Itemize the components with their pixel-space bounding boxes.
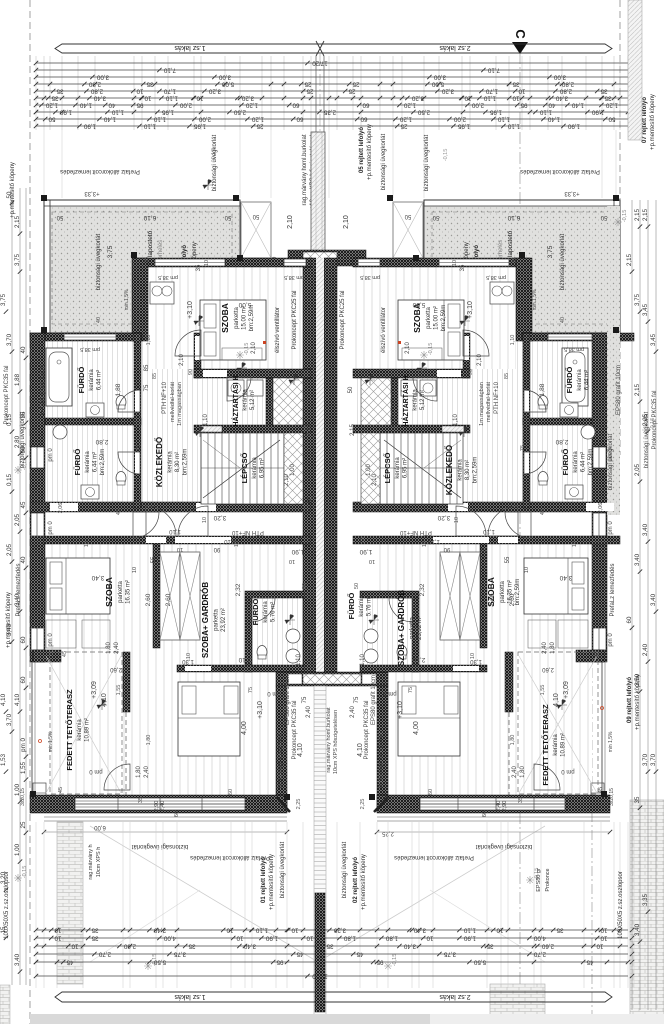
svg-text:pm 0: pm 0 — [608, 448, 614, 462]
svg-text:2.sz lakás: 2.sz lakás — [439, 993, 471, 1000]
svg-text:C: C — [513, 29, 528, 39]
svg-text:rag.márvány h: rag.márvány h — [88, 844, 94, 879]
svg-text:35: 35 — [512, 257, 518, 263]
svg-text:pm 0: pm 0 — [89, 768, 103, 774]
svg-text:55: 55 — [151, 556, 157, 563]
svg-text:1m magasságban: 1m magasságban — [479, 382, 485, 426]
svg-text:1,10: 1,10 — [360, 654, 366, 666]
svg-text:15.00 m²: 15.00 m² — [242, 306, 248, 330]
svg-text:pm 38,5: pm 38,5 — [486, 274, 506, 280]
svg-text:60: 60 — [292, 102, 299, 109]
svg-text:95: 95 — [520, 102, 527, 109]
svg-text:35: 35 — [600, 88, 607, 95]
svg-text:1,10: 1,10 — [296, 654, 302, 666]
svg-text:3,40: 3,40 — [634, 553, 641, 566]
svg-text:50: 50 — [354, 583, 360, 589]
svg-text:75: 75 — [408, 687, 414, 693]
svg-text:PTH NF+10: PTH NF+10 — [162, 381, 168, 414]
svg-text:SZOBA: SZOBA — [220, 303, 230, 333]
svg-text:2,15: 2,15 — [642, 208, 649, 221]
svg-text:50: 50 — [48, 116, 55, 123]
svg-text:2,15: 2,15 — [14, 215, 21, 228]
svg-text:kerámia: kerámia — [243, 389, 249, 411]
svg-text:1,88: 1,88 — [14, 373, 21, 386]
svg-text:1,10: 1,10 — [483, 95, 496, 102]
svg-text:1,20: 1,20 — [251, 116, 264, 123]
svg-text:35: 35 — [512, 81, 519, 88]
svg-text:95: 95 — [276, 959, 283, 966]
svg-text:60: 60 — [428, 789, 434, 795]
svg-text:1m magasságban: 1m magasságban — [177, 382, 183, 426]
svg-text:2,32: 2,32 — [419, 583, 426, 596]
svg-text:KÖZLEKEDŐ: KÖZLEKEDŐ — [155, 437, 164, 487]
svg-text:5,00: 5,00 — [221, 81, 234, 88]
svg-text:min 1,5%: min 1,5% — [608, 731, 614, 752]
svg-text:2,10: 2,10 — [477, 354, 483, 366]
svg-text:45: 45 — [20, 501, 27, 508]
svg-text:bm:2,59m: bm:2,59m — [588, 449, 594, 476]
svg-text:2,06: 2,06 — [58, 503, 64, 514]
svg-text:biztonsági üvegkorlát: biztonsági üvegkorlát — [96, 233, 102, 290]
svg-text:2,10: 2,10 — [343, 215, 350, 229]
svg-text:2,50: 2,50 — [417, 109, 430, 116]
svg-text:60: 60 — [296, 116, 303, 123]
svg-text:6,10: 6,10 — [143, 214, 156, 221]
svg-text:+p.mentesítő köpeny: +p.mentesítő köpeny — [6, 592, 12, 648]
svg-text:1,53: 1,53 — [0, 753, 7, 766]
svg-text:07 rejtett lefolyó: 07 rejtett lefolyó — [642, 97, 648, 143]
svg-text:5,00: 5,00 — [238, 301, 251, 308]
svg-text:FÜRDŐ: FÜRDŐ — [251, 599, 260, 626]
svg-text:PrefaLz lemezfedés: PrefaLz lemezfedés — [610, 563, 616, 616]
svg-text:10: 10 — [144, 95, 151, 102]
svg-text:35: 35 — [146, 81, 153, 88]
svg-text:1,10: 1,10 — [153, 116, 166, 123]
svg-text:2,06: 2,06 — [598, 503, 604, 514]
svg-text:EPS80 grafit 10cm: EPS80 grafit 10cm — [371, 675, 377, 725]
svg-text:kerámia: kerámia — [573, 451, 579, 473]
svg-text:2,05: 2,05 — [642, 413, 649, 426]
svg-text:kerámia: kerámia — [89, 369, 95, 391]
svg-text:+p.mentesítő köpeny: +p.mentesítő köpeny — [269, 854, 275, 910]
svg-text:10: 10 — [481, 546, 487, 552]
svg-text:3,20: 3,20 — [441, 88, 454, 95]
svg-text:Prefalz állókorcolt lemezfedés: Prefalz állókorcolt lemezfedés — [394, 854, 474, 860]
svg-text:10: 10 — [226, 927, 233, 934]
svg-text:4,10: 4,10 — [0, 693, 7, 706]
svg-text:1,10: 1,10 — [165, 95, 178, 102]
svg-text:6,10: 6,10 — [507, 214, 520, 221]
svg-text:1,70: 1,70 — [163, 88, 176, 95]
svg-text:1,95: 1,95 — [161, 109, 174, 116]
svg-text:biztonsági üvegkorlát: biztonsági üvegkorlát — [378, 731, 384, 788]
svg-text:pm 0: pm 0 — [608, 633, 614, 647]
svg-text:2,40: 2,40 — [542, 642, 548, 654]
svg-text:2,60: 2,60 — [542, 666, 554, 672]
svg-text:50: 50 — [404, 213, 411, 219]
svg-text:1,90: 1,90 — [265, 935, 278, 942]
svg-text:2,70: 2,70 — [98, 951, 111, 958]
svg-text:1,95: 1,95 — [489, 109, 502, 116]
svg-text:5,00: 5,00 — [431, 81, 444, 88]
svg-text:4,00: 4,00 — [533, 935, 546, 942]
svg-text:1.sz lakás: 1.sz lakás — [174, 44, 206, 51]
svg-text:3,40: 3,40 — [559, 574, 572, 581]
svg-text:10: 10 — [426, 935, 433, 942]
svg-text:3,75: 3,75 — [14, 253, 21, 266]
svg-text:10: 10 — [572, 541, 578, 547]
svg-text:2,80: 2,80 — [14, 435, 21, 448]
svg-text:3,75: 3,75 — [443, 951, 456, 958]
svg-text:3,00: 3,00 — [553, 74, 566, 81]
svg-text:pm 38,5: pm 38,5 — [564, 346, 584, 352]
svg-text:3,35: 3,35 — [642, 893, 649, 906]
svg-text:2,10: 2,10 — [179, 354, 185, 366]
svg-text:3,40: 3,40 — [403, 943, 416, 950]
svg-text:35: 35 — [91, 927, 98, 934]
svg-text:40: 40 — [20, 346, 27, 353]
svg-text:3,70: 3,70 — [650, 753, 657, 766]
svg-text:7,10: 7,10 — [163, 67, 176, 74]
svg-text:pm 0: pm 0 — [20, 738, 27, 752]
svg-text:1,10: 1,10 — [539, 109, 552, 116]
svg-text:2,05: 2,05 — [634, 463, 641, 476]
svg-text:3,00: 3,00 — [433, 74, 446, 81]
svg-text:-0,15: -0,15 — [650, 418, 656, 431]
svg-text:EPS80 grafit 10cm: EPS80 grafit 10cm — [285, 675, 291, 725]
svg-text:1,00: 1,00 — [366, 464, 372, 476]
svg-text:-0,15: -0,15 — [443, 149, 449, 162]
svg-text:85: 85 — [504, 373, 510, 379]
svg-text:6,44 m²: 6,44 m² — [97, 370, 103, 390]
svg-text:1,10: 1,10 — [483, 528, 495, 534]
svg-text:2,00: 2,00 — [453, 116, 466, 123]
svg-text:1,00: 1,00 — [14, 843, 21, 856]
svg-text:25: 25 — [304, 81, 311, 88]
svg-text:min 1,5%: min 1,5% — [124, 289, 130, 310]
svg-text:+3,33: +3,33 — [84, 190, 100, 196]
svg-text:3,00: 3,00 — [218, 74, 231, 81]
svg-text:1,10: 1,10 — [111, 109, 124, 116]
svg-text:LÉPCSŐ: LÉPCSŐ — [383, 452, 392, 483]
svg-text:PTH NF+10: PTH NF+10 — [494, 381, 500, 414]
svg-text:10: 10 — [369, 558, 375, 564]
svg-text:3,50: 3,50 — [634, 673, 641, 686]
svg-text:1,20: 1,20 — [399, 116, 412, 123]
svg-text:1,10: 1,10 — [428, 538, 440, 544]
svg-text:Prefalz állókorcolt lemezfedés: Prefalz állókorcolt lemezfedés — [60, 168, 140, 174]
svg-text:10: 10 — [291, 927, 298, 934]
svg-text:05 rejtett lefolyó: 05 rejtett lefolyó — [359, 127, 365, 173]
svg-text:35: 35 — [556, 927, 563, 934]
svg-text:45: 45 — [296, 951, 303, 958]
svg-text:10: 10 — [202, 517, 208, 523]
svg-text:pm 38,5: pm 38,5 — [158, 274, 178, 280]
svg-text:35: 35 — [518, 797, 524, 803]
svg-text:90: 90 — [443, 546, 450, 552]
svg-text:Prokoncept PKC35 fal: Prokoncept PKC35 fal — [364, 700, 370, 759]
svg-text:50: 50 — [432, 214, 439, 220]
svg-text:1,10: 1,10 — [497, 116, 510, 123]
svg-text:75: 75 — [248, 687, 254, 693]
svg-text:4,00: 4,00 — [241, 721, 248, 735]
svg-text:3,20: 3,20 — [241, 95, 254, 102]
svg-text:FÜRDŐ: FÜRDŐ — [73, 449, 82, 476]
svg-text:2,15: 2,15 — [634, 383, 641, 396]
svg-text:35: 35 — [56, 88, 63, 95]
svg-text:kerámia: kerámia — [395, 457, 401, 479]
svg-text:1,10: 1,10 — [507, 123, 520, 130]
svg-text:parketta: parketta — [426, 307, 432, 329]
svg-text:5,12 m²: 5,12 m² — [420, 390, 426, 410]
svg-text:95: 95 — [136, 102, 143, 109]
svg-text:parketta: parketta — [214, 609, 220, 631]
svg-text:10: 10 — [204, 260, 210, 266]
svg-text:2,80: 2,80 — [555, 438, 568, 445]
svg-text:2,80: 2,80 — [95, 438, 108, 445]
svg-text:8,30 m²: 8,30 m² — [175, 452, 181, 472]
svg-text:1,00: 1,00 — [290, 464, 296, 476]
svg-text:3,70: 3,70 — [6, 713, 13, 726]
svg-text:45: 45 — [66, 959, 73, 966]
svg-text:10.89 m²: 10.89 m² — [85, 718, 91, 742]
svg-text:pm 0: pm 0 — [48, 633, 54, 647]
svg-text:75: 75 — [136, 445, 142, 451]
svg-text:1,10: 1,10 — [255, 927, 268, 934]
svg-text:2,50: 2,50 — [233, 109, 246, 116]
svg-text:60: 60 — [20, 676, 27, 683]
svg-text:3,40: 3,40 — [555, 95, 568, 102]
svg-text:10: 10 — [600, 935, 607, 942]
svg-text:10: 10 — [186, 653, 192, 659]
svg-text:3,40: 3,40 — [634, 923, 641, 936]
svg-text:pm 0: pm 0 — [608, 521, 614, 535]
svg-text:3,40: 3,40 — [650, 593, 657, 606]
svg-text:3,40: 3,40 — [413, 927, 426, 934]
svg-text:Prefalz állókorcolt lemezfedés: Prefalz állókorcolt lemezfedés — [520, 168, 600, 174]
svg-text:50: 50 — [6, 191, 13, 198]
svg-text:55: 55 — [505, 556, 511, 563]
svg-text:90: 90 — [468, 369, 474, 375]
svg-text:40: 40 — [108, 102, 115, 109]
svg-text:6,44 m²: 6,44 m² — [93, 452, 99, 472]
svg-text:+3,09: +3,09 — [563, 681, 570, 699]
svg-text:2,40: 2,40 — [144, 766, 150, 778]
svg-text:kerámia: kerámia — [577, 369, 583, 391]
svg-text:25: 25 — [360, 537, 366, 543]
svg-text:1,20: 1,20 — [45, 102, 58, 109]
svg-text:3,45: 3,45 — [642, 303, 649, 316]
svg-text:60: 60 — [228, 789, 234, 795]
svg-text:SZOBA+ GARDRÓB: SZOBA+ GARDRÓB — [397, 590, 406, 666]
svg-text:90: 90 — [213, 546, 220, 552]
svg-text:rag.márvány homl.burkolat: rag.márvány homl.burkolat — [302, 134, 308, 205]
svg-text:1,80: 1,80 — [343, 935, 356, 942]
svg-text:1,10: 1,10 — [169, 528, 181, 534]
svg-text:2,40: 2,40 — [512, 766, 518, 778]
svg-text:5,50: 5,50 — [153, 959, 166, 966]
svg-text:10: 10 — [470, 653, 476, 659]
svg-text:2,70: 2,70 — [533, 951, 546, 958]
svg-text:10: 10 — [289, 558, 295, 564]
svg-text:1,90: 1,90 — [567, 123, 580, 130]
svg-text:35: 35 — [144, 257, 150, 263]
svg-text:parketta: parketta — [500, 581, 506, 603]
svg-text:biztonsági üvegkorlát: biztonsági üvegkorlát — [560, 233, 566, 290]
svg-text:1,20: 1,20 — [605, 102, 618, 109]
svg-text:pm 38,5: pm 38,5 — [360, 274, 380, 280]
svg-text:10cm XPS h: 10cm XPS h — [96, 847, 102, 878]
svg-text:15: 15 — [0, 926, 7, 933]
svg-text:+3,10: +3,10 — [257, 701, 264, 719]
svg-text:5.76 m²: 5.76 m² — [367, 596, 373, 616]
svg-text:4,10: 4,10 — [14, 693, 21, 706]
svg-text:10: 10 — [452, 260, 458, 266]
svg-text:10: 10 — [496, 927, 503, 934]
svg-text:45: 45 — [62, 651, 68, 657]
svg-text:15.00 m²: 15.00 m² — [434, 306, 440, 330]
svg-text:3,20: 3,20 — [437, 514, 450, 521]
svg-text:35: 35 — [91, 935, 98, 942]
svg-text:6,44 m²: 6,44 m² — [585, 370, 591, 390]
svg-text:4,00: 4,00 — [413, 721, 420, 735]
svg-text:2,40: 2,40 — [114, 642, 120, 654]
svg-text:2,80: 2,80 — [90, 88, 103, 95]
svg-text:50: 50 — [348, 386, 354, 393]
svg-text:50: 50 — [302, 583, 308, 589]
svg-text:pm 0: pm 0 — [561, 768, 575, 774]
svg-text:25: 25 — [352, 81, 359, 88]
svg-text:50: 50 — [56, 214, 63, 220]
svg-text:1,40: 1,40 — [547, 116, 560, 123]
svg-text:PrefaLz lemezfedés: PrefaLz lemezfedés — [16, 563, 22, 616]
svg-text:50: 50 — [224, 214, 231, 220]
svg-text:35: 35 — [196, 264, 202, 271]
svg-text:35: 35 — [460, 264, 466, 271]
svg-text:2,40: 2,40 — [306, 706, 312, 718]
svg-text:3,45: 3,45 — [650, 333, 657, 346]
svg-text:45: 45 — [586, 959, 593, 966]
svg-text:-0,15: -0,15 — [22, 866, 28, 879]
svg-text:75: 75 — [520, 445, 526, 451]
svg-text:parketta: parketta — [234, 307, 240, 329]
svg-text:Prokoncept PKC25 fal: Prokoncept PKC25 fal — [340, 290, 346, 349]
svg-text:1,80: 1,80 — [520, 766, 526, 778]
svg-text:4,00: 4,00 — [163, 935, 176, 942]
svg-text:2,60: 2,60 — [509, 593, 516, 606]
svg-text:pm 0: pm 0 — [48, 521, 54, 535]
svg-text:1,55: 1,55 — [116, 685, 122, 696]
svg-text:pm 0: pm 0 — [383, 690, 397, 696]
svg-text:élszívó ventillátor: élszívó ventillátor — [275, 307, 281, 353]
svg-text:23,92 m²: 23,92 m² — [221, 608, 227, 632]
svg-text:3,40: 3,40 — [153, 927, 166, 934]
svg-text:1,10: 1,10 — [510, 335, 516, 346]
svg-text:3,20: 3,20 — [213, 514, 226, 521]
svg-text:mellvédfal-korlát: mellvédfal-korlát — [486, 382, 492, 423]
svg-text:25: 25 — [256, 123, 263, 130]
svg-text:bm:2,59m: bm:2,59m — [100, 449, 106, 476]
svg-text:élszívó ventillátor: élszívó ventillátor — [381, 307, 387, 353]
svg-text:7,10: 7,10 — [487, 67, 500, 74]
svg-text:-0,15: -0,15 — [392, 954, 398, 967]
svg-text:1,55: 1,55 — [540, 685, 546, 696]
svg-text:6,44 m²: 6,44 m² — [581, 452, 587, 472]
svg-text:2,00: 2,00 — [198, 116, 211, 123]
svg-text:10: 10 — [512, 95, 519, 102]
svg-text:1,10: 1,10 — [143, 123, 156, 130]
svg-text:3,40: 3,40 — [642, 523, 649, 536]
svg-text:4,10: 4,10 — [357, 743, 364, 757]
svg-text:3,40: 3,40 — [93, 95, 106, 102]
svg-text:biztonsági üvegkorlát: biztonsági üvegkorlát — [342, 841, 348, 898]
svg-text:35: 35 — [326, 943, 333, 950]
svg-text:Prefalz állókorcolt lemezfedés: Prefalz állókorcolt lemezfedés — [190, 854, 270, 860]
svg-text:3,40: 3,40 — [14, 593, 21, 606]
svg-text:6,95 m²: 6,95 m² — [403, 458, 409, 478]
svg-text:10: 10 — [454, 517, 460, 523]
svg-text:45: 45 — [594, 651, 600, 657]
svg-text:45: 45 — [540, 509, 546, 515]
svg-text:2,60: 2,60 — [165, 593, 172, 606]
svg-text:HÁZTARTÁSI H.: HÁZTARTÁSI H. — [231, 373, 240, 426]
svg-text:biztonsági üvegkorlát: biztonsági üvegkorlát — [381, 133, 387, 190]
svg-text:2,10: 2,10 — [251, 342, 257, 354]
svg-text:2,60: 2,60 — [541, 943, 554, 950]
svg-text:60: 60 — [174, 811, 180, 817]
svg-text:-0,15: -0,15 — [622, 210, 628, 223]
svg-text:2,40: 2,40 — [642, 643, 649, 656]
svg-text:40: 40 — [548, 102, 555, 109]
svg-text:biztonsági üvegkorlát: biztonsági üvegkorlát — [212, 134, 218, 191]
svg-text:+p.mentesítő köpeny: +p.mentesítő köpeny — [10, 162, 16, 218]
svg-text:+3,33: +3,33 — [564, 190, 580, 196]
svg-text:3,75: 3,75 — [634, 293, 641, 306]
svg-text:2,25: 2,25 — [382, 830, 394, 836]
svg-text:40: 40 — [96, 317, 102, 323]
svg-text:6,95 m²: 6,95 m² — [260, 458, 266, 478]
svg-text:min 1,5%: min 1,5% — [532, 289, 538, 310]
svg-text:10: 10 — [422, 541, 428, 547]
svg-text:1,90: 1,90 — [463, 935, 476, 942]
svg-text:3,70: 3,70 — [642, 753, 649, 766]
svg-text:3,75: 3,75 — [0, 293, 7, 306]
svg-text:100X50X5 z.sz.oszlopsor: 100X50X5 z.sz.oszlopsor — [618, 871, 624, 939]
svg-text:2,40: 2,40 — [160, 801, 166, 812]
svg-text:EPS80 grafit 10cm: EPS80 grafit 10cm — [40, 365, 46, 415]
svg-text:8,30 m²: 8,30 m² — [465, 460, 471, 480]
svg-text:kerámia: kerámia — [263, 601, 269, 623]
svg-text:1,80: 1,80 — [136, 766, 142, 778]
svg-text:2,25: 2,25 — [296, 799, 302, 810]
svg-text:EPS80 grafit 10cm: EPS80 grafit 10cm — [616, 365, 622, 415]
svg-text:3,00: 3,00 — [96, 74, 109, 81]
svg-text:2,80: 2,80 — [561, 81, 574, 88]
svg-text:25: 25 — [306, 88, 313, 95]
svg-text:KÖZLEKEDŐ: KÖZLEKEDŐ — [445, 445, 454, 495]
svg-text:2,35: 2,35 — [323, 109, 336, 116]
svg-text:1,80: 1,80 — [510, 735, 516, 746]
svg-text:2,10: 2,10 — [372, 474, 378, 486]
svg-text:6,00: 6,00 — [94, 824, 106, 830]
svg-text:bm:2,59m: bm:2,59m — [183, 449, 189, 476]
svg-text:+3,10: +3,10 — [467, 301, 474, 319]
svg-text:biztonsági üvegkorlát: biztonsági üvegkorlát — [280, 841, 286, 898]
svg-text:23,92 m²: 23,92 m² — [417, 616, 423, 640]
svg-text:2,05: 2,05 — [6, 543, 13, 556]
svg-text:1,80: 1,80 — [550, 642, 556, 654]
svg-text:2,60: 2,60 — [489, 593, 496, 606]
